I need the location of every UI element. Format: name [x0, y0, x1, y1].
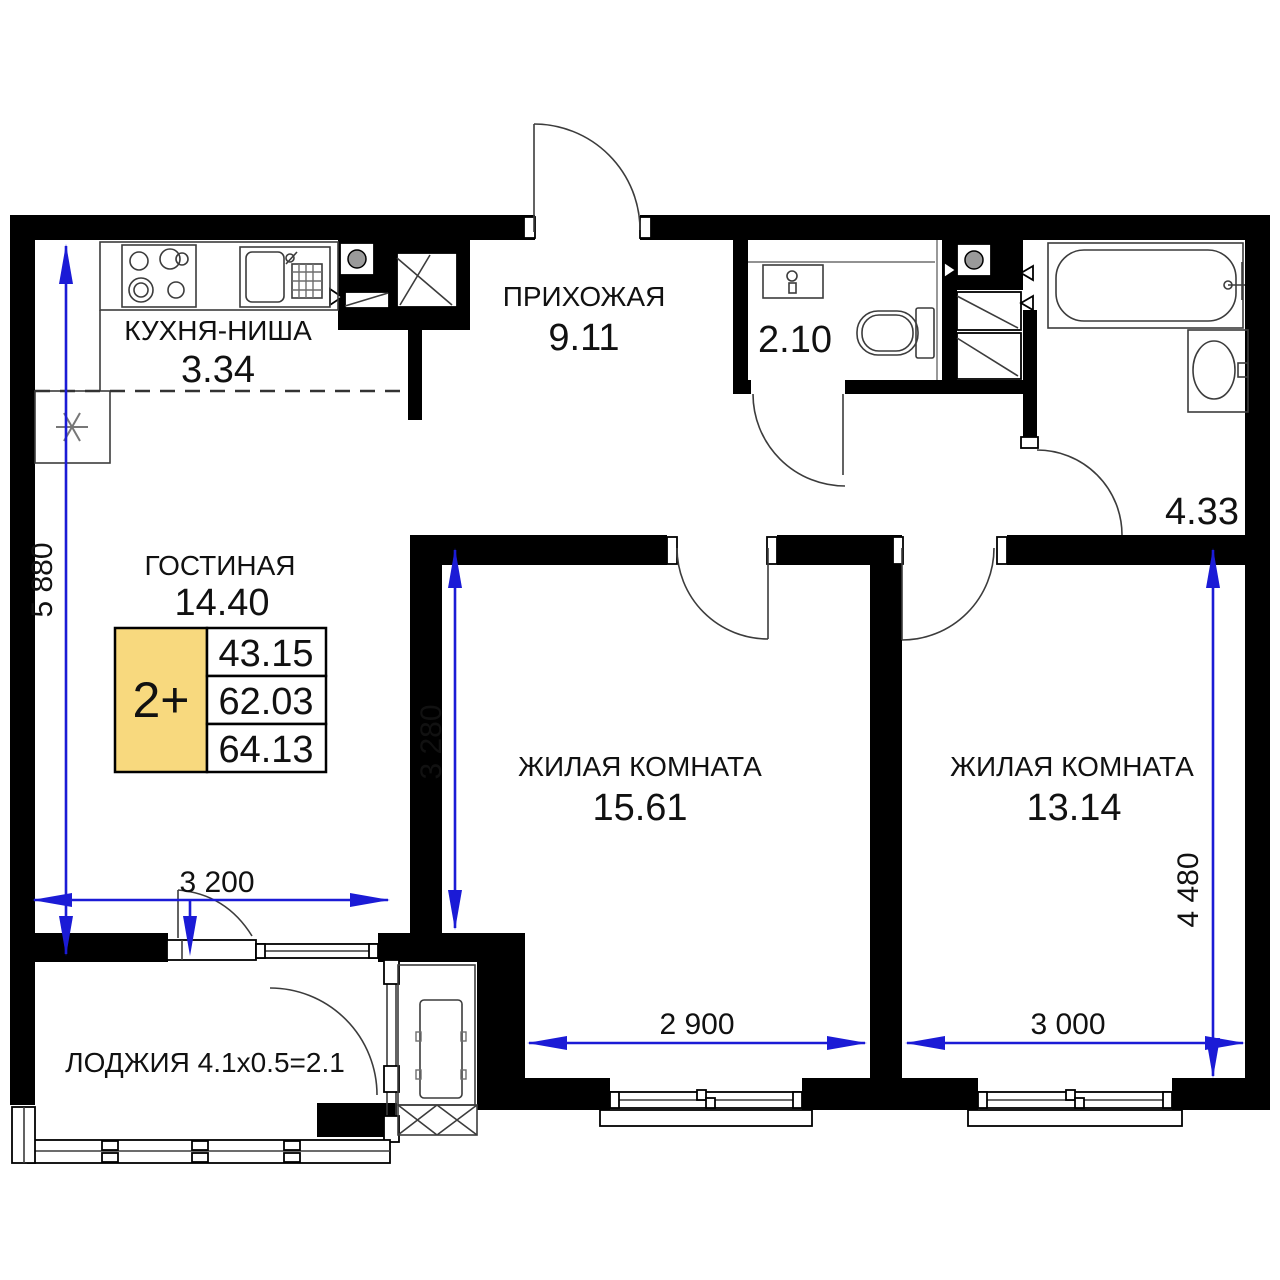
washbasin-icon	[789, 283, 796, 293]
wall	[870, 535, 902, 1110]
dim-arrow	[905, 1036, 945, 1050]
wall	[1023, 310, 1037, 447]
dim-label-v-left: 5 880	[26, 542, 59, 617]
bathtub-icon	[1056, 250, 1236, 321]
floor-plan-svg: 5 880 3 280 4 480 3 200 2 900 3 000 КУХН…	[0, 0, 1280, 1280]
washbasin-icon	[787, 271, 797, 281]
stove-icon	[134, 283, 148, 297]
stove-icon	[130, 252, 148, 270]
window-cap	[1163, 1092, 1172, 1108]
bathroom-area: 4.33	[1165, 491, 1239, 533]
door-jamb	[997, 537, 1007, 564]
vent-icon	[348, 250, 366, 268]
hallway-label: ПРИХОЖАЯ	[503, 281, 666, 312]
dim-label-v-right: 4 480	[1172, 852, 1205, 927]
kitchen-area: 3.34	[181, 349, 255, 391]
window-cap	[369, 944, 378, 958]
dim-arrow	[350, 893, 390, 907]
loggia-mullion	[102, 1141, 118, 1150]
loggia-mullion	[192, 1153, 208, 1162]
badge-living-area: 43.15	[218, 633, 313, 675]
fridge-snowflake-icon	[56, 413, 88, 441]
living-label: ГОСТИНАЯ	[144, 550, 295, 581]
badge-type: 2+	[132, 672, 189, 728]
dim-label-v-room1: 3 280	[415, 704, 448, 779]
stove-icon	[160, 249, 180, 269]
window-cap	[1075, 1098, 1084, 1108]
entrance-door-arc	[534, 124, 640, 230]
loggia-frame-cap	[384, 1116, 399, 1142]
bedroom2-door-arc	[902, 548, 994, 640]
kitchen-sink-icon	[246, 252, 284, 302]
floor-plan: 5 880 3 280 4 480 3 200 2 900 3 000 КУХН…	[0, 0, 1280, 1280]
bedroom2-label: ЖИЛАЯ КОМНАТА	[950, 751, 1194, 782]
wall	[378, 933, 525, 962]
bedroom1-area: 15.61	[592, 787, 687, 829]
wall	[845, 380, 1023, 394]
badge-total-area: 64.13	[218, 729, 313, 771]
living-area: 14.40	[174, 582, 269, 624]
dim-label-h-room1: 2 900	[659, 1008, 734, 1041]
bedroom1-label: ЖИЛАЯ КОМНАТА	[518, 751, 762, 782]
dim-arrow	[59, 244, 73, 284]
balcony-door	[167, 940, 256, 960]
wall	[35, 933, 168, 962]
door-jamb	[1021, 437, 1038, 448]
window-sill	[600, 1110, 812, 1126]
wall	[733, 240, 748, 382]
bathroom-door-arc	[1037, 450, 1122, 535]
ac-basket	[398, 1105, 477, 1135]
wall	[640, 215, 1270, 240]
bathtub-icon	[1048, 243, 1243, 328]
window-cap	[978, 1092, 987, 1108]
stove-icon	[176, 253, 188, 265]
window-cap	[697, 1090, 706, 1100]
bedroom2-area: 13.14	[1026, 787, 1121, 829]
wall	[777, 535, 897, 565]
window-cap	[706, 1098, 715, 1108]
wall	[10, 215, 535, 240]
loggia-mullion	[284, 1141, 300, 1150]
badge-area-no-loggia: 62.03	[218, 681, 313, 723]
stove-icon	[129, 278, 153, 302]
dim-arrow	[32, 893, 72, 907]
wall	[733, 380, 751, 394]
kitchen-label: КУХНЯ-НИША	[124, 315, 312, 346]
ac-unit-icon	[420, 1000, 462, 1098]
kitchen-sink-icon	[292, 264, 322, 298]
wall	[408, 320, 422, 420]
door-jamb	[667, 537, 677, 564]
window-cap	[256, 944, 265, 958]
vent-triangle-icon	[1021, 296, 1033, 310]
dim-label-h-room2: 3 000	[1030, 1008, 1105, 1041]
wall	[525, 1078, 610, 1110]
loggia-mullion	[192, 1141, 208, 1150]
dim-arrow	[827, 1036, 867, 1050]
dim-arrow	[448, 890, 462, 930]
dim-label-h-loggia: 3 200	[179, 866, 254, 899]
loggia-label: ЛОДЖИЯ 4.1x0.5=2.1	[65, 1047, 345, 1078]
wc-area: 2.10	[758, 319, 832, 361]
stove-icon	[168, 282, 184, 298]
window-cap	[610, 1092, 619, 1108]
loggia-frame-cap	[384, 960, 399, 984]
window-cap	[1066, 1090, 1075, 1100]
washbasin-icon	[1193, 341, 1235, 399]
loggia-frame-cap	[384, 1066, 399, 1092]
hallway-area: 9.11	[548, 317, 619, 359]
toilet-icon	[857, 311, 918, 355]
wall	[1007, 535, 1245, 565]
wall	[1172, 1078, 1270, 1110]
bathroom-fixtures	[1048, 243, 1248, 412]
wall	[10, 240, 35, 1105]
loggia-mullion	[284, 1153, 300, 1162]
wall	[410, 535, 667, 565]
loggia-door-arc	[270, 988, 377, 1095]
wc-door-arc	[753, 394, 845, 486]
dim-arrow	[1205, 1036, 1245, 1050]
dim-arrow	[527, 1036, 567, 1050]
toilet-icon	[862, 315, 913, 351]
bedroom1-door-arc	[677, 548, 768, 639]
window-cap	[793, 1092, 802, 1108]
wall	[477, 962, 525, 1110]
ac-basket	[398, 1105, 477, 1135]
ac-niche	[398, 965, 475, 1105]
door-jamb	[640, 217, 651, 238]
apartment-badge: 2+ 43.15 62.03 64.13	[115, 628, 326, 772]
loggia-mullion	[102, 1153, 118, 1162]
vent-icon	[965, 251, 983, 269]
window-sill	[968, 1110, 1182, 1126]
